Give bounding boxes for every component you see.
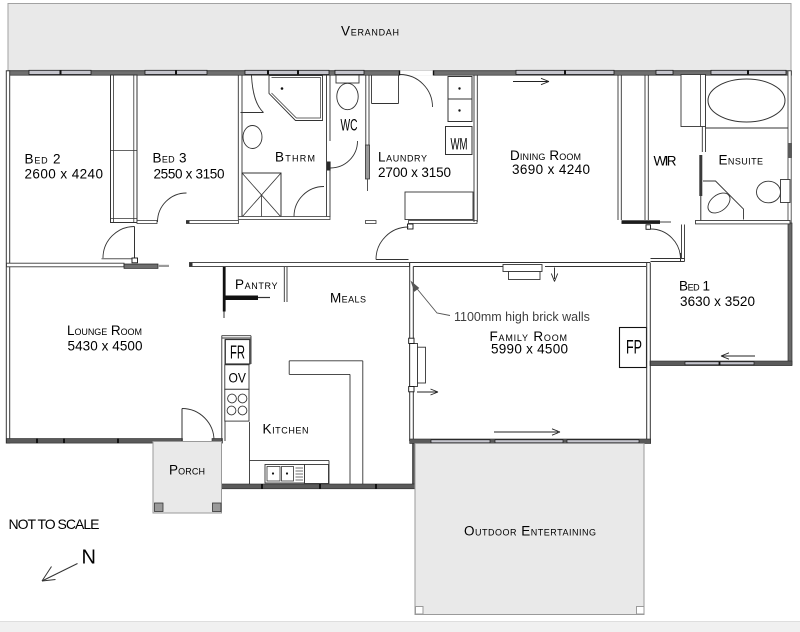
- svg-text:2600 x 4240: 2600 x 4240: [25, 167, 104, 182]
- svg-text:WM: WM: [451, 135, 468, 153]
- svg-text:5430 x 4500: 5430 x 4500: [68, 339, 143, 354]
- svg-text:3630 x 3520: 3630 x 3520: [680, 294, 755, 309]
- svg-text:FR: FR: [230, 343, 245, 364]
- svg-text:Ensuite: Ensuite: [719, 153, 764, 168]
- svg-text:2550 x 3150: 2550 x 3150: [154, 167, 225, 182]
- svg-text:Lounge Room: Lounge Room: [67, 323, 142, 338]
- svg-text:NOT TO SCALE: NOT TO SCALE: [9, 516, 100, 532]
- svg-text:Bthrm: Bthrm: [275, 150, 315, 165]
- svg-text:Dining Room: Dining Room: [510, 148, 581, 163]
- svg-text:Porch: Porch: [169, 463, 205, 478]
- svg-text:Outdoor Entertaining: Outdoor Entertaining: [464, 524, 596, 539]
- svg-text:Laundry: Laundry: [378, 150, 427, 165]
- svg-text:WIR: WIR: [654, 154, 677, 169]
- svg-text:2700 x 3150: 2700 x 3150: [378, 165, 451, 180]
- svg-text:1100mm high brick walls: 1100mm high brick walls: [454, 310, 590, 324]
- svg-text:N: N: [82, 547, 96, 569]
- svg-text:Kitchen: Kitchen: [263, 422, 309, 437]
- svg-text:5990 x 4500: 5990 x 4500: [491, 342, 568, 357]
- svg-text:Verandah: Verandah: [341, 24, 399, 39]
- svg-text:Bed 3: Bed 3: [153, 151, 187, 166]
- svg-text:3690 x 4240: 3690 x 4240: [512, 162, 590, 177]
- svg-text:FP: FP: [626, 337, 642, 358]
- svg-text:WC: WC: [341, 116, 358, 134]
- svg-text:Bed 1: Bed 1: [679, 279, 710, 294]
- svg-text:Meals: Meals: [330, 291, 366, 306]
- svg-text:OV: OV: [229, 370, 247, 386]
- svg-text:Pantry: Pantry: [235, 277, 278, 292]
- svg-text:Bed 2: Bed 2: [25, 152, 61, 167]
